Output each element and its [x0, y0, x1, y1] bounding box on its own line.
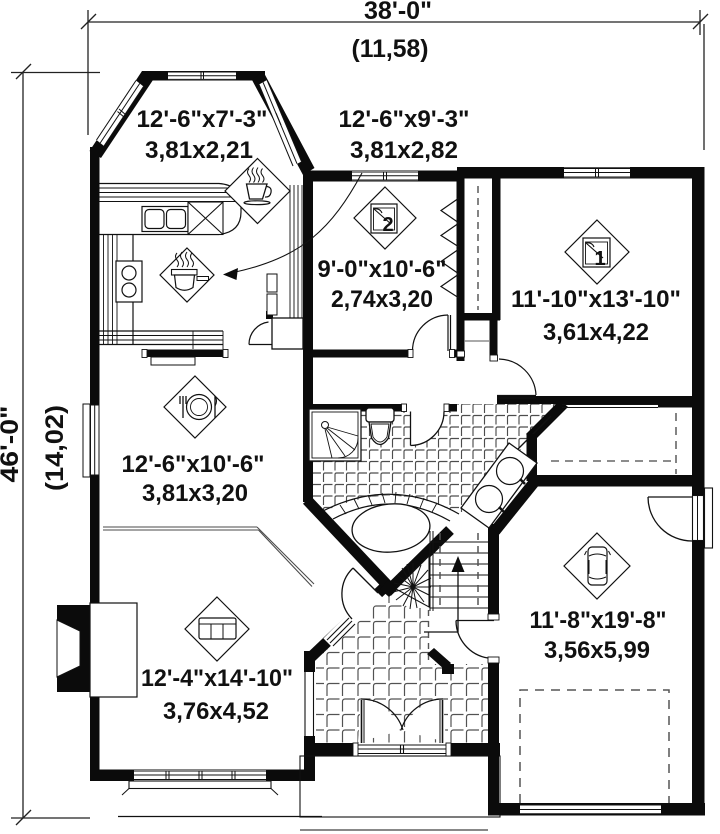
svg-text:3,76x4,52: 3,76x4,52: [163, 698, 269, 725]
svg-text:12'-6"x10'-6": 12'-6"x10'-6": [122, 451, 265, 478]
svg-text:2,74x3,20: 2,74x3,20: [331, 286, 433, 313]
svg-text:12'-6"x7'-3": 12'-6"x7'-3": [137, 106, 268, 133]
svg-text:3,56x5,99: 3,56x5,99: [544, 637, 650, 664]
svg-text:3,81x2,82: 3,81x2,82: [350, 137, 458, 164]
svg-text:12'-6"x9'-3": 12'-6"x9'-3": [339, 106, 470, 133]
svg-text:46'-0": 46'-0": [0, 406, 24, 483]
svg-text:3,61x4,22: 3,61x4,22: [543, 319, 649, 346]
svg-text:(11,58): (11,58): [352, 35, 429, 63]
svg-text:38'-0": 38'-0": [364, 0, 432, 25]
svg-text:11'-8"x19'-8": 11'-8"x19'-8": [530, 607, 667, 634]
svg-text:(14,02): (14,02): [41, 405, 69, 491]
svg-text:12'-4"x14'-10": 12'-4"x14'-10": [141, 665, 293, 692]
svg-text:2: 2: [382, 214, 393, 236]
svg-text:3,81x3,20: 3,81x3,20: [142, 480, 248, 507]
svg-text:3,81x2,21: 3,81x2,21: [145, 137, 253, 164]
svg-text:1: 1: [594, 248, 605, 270]
svg-text:9'-0"x10'-6": 9'-0"x10'-6": [318, 256, 447, 283]
svg-text:11'-10"x13'-10": 11'-10"x13'-10": [511, 286, 681, 313]
